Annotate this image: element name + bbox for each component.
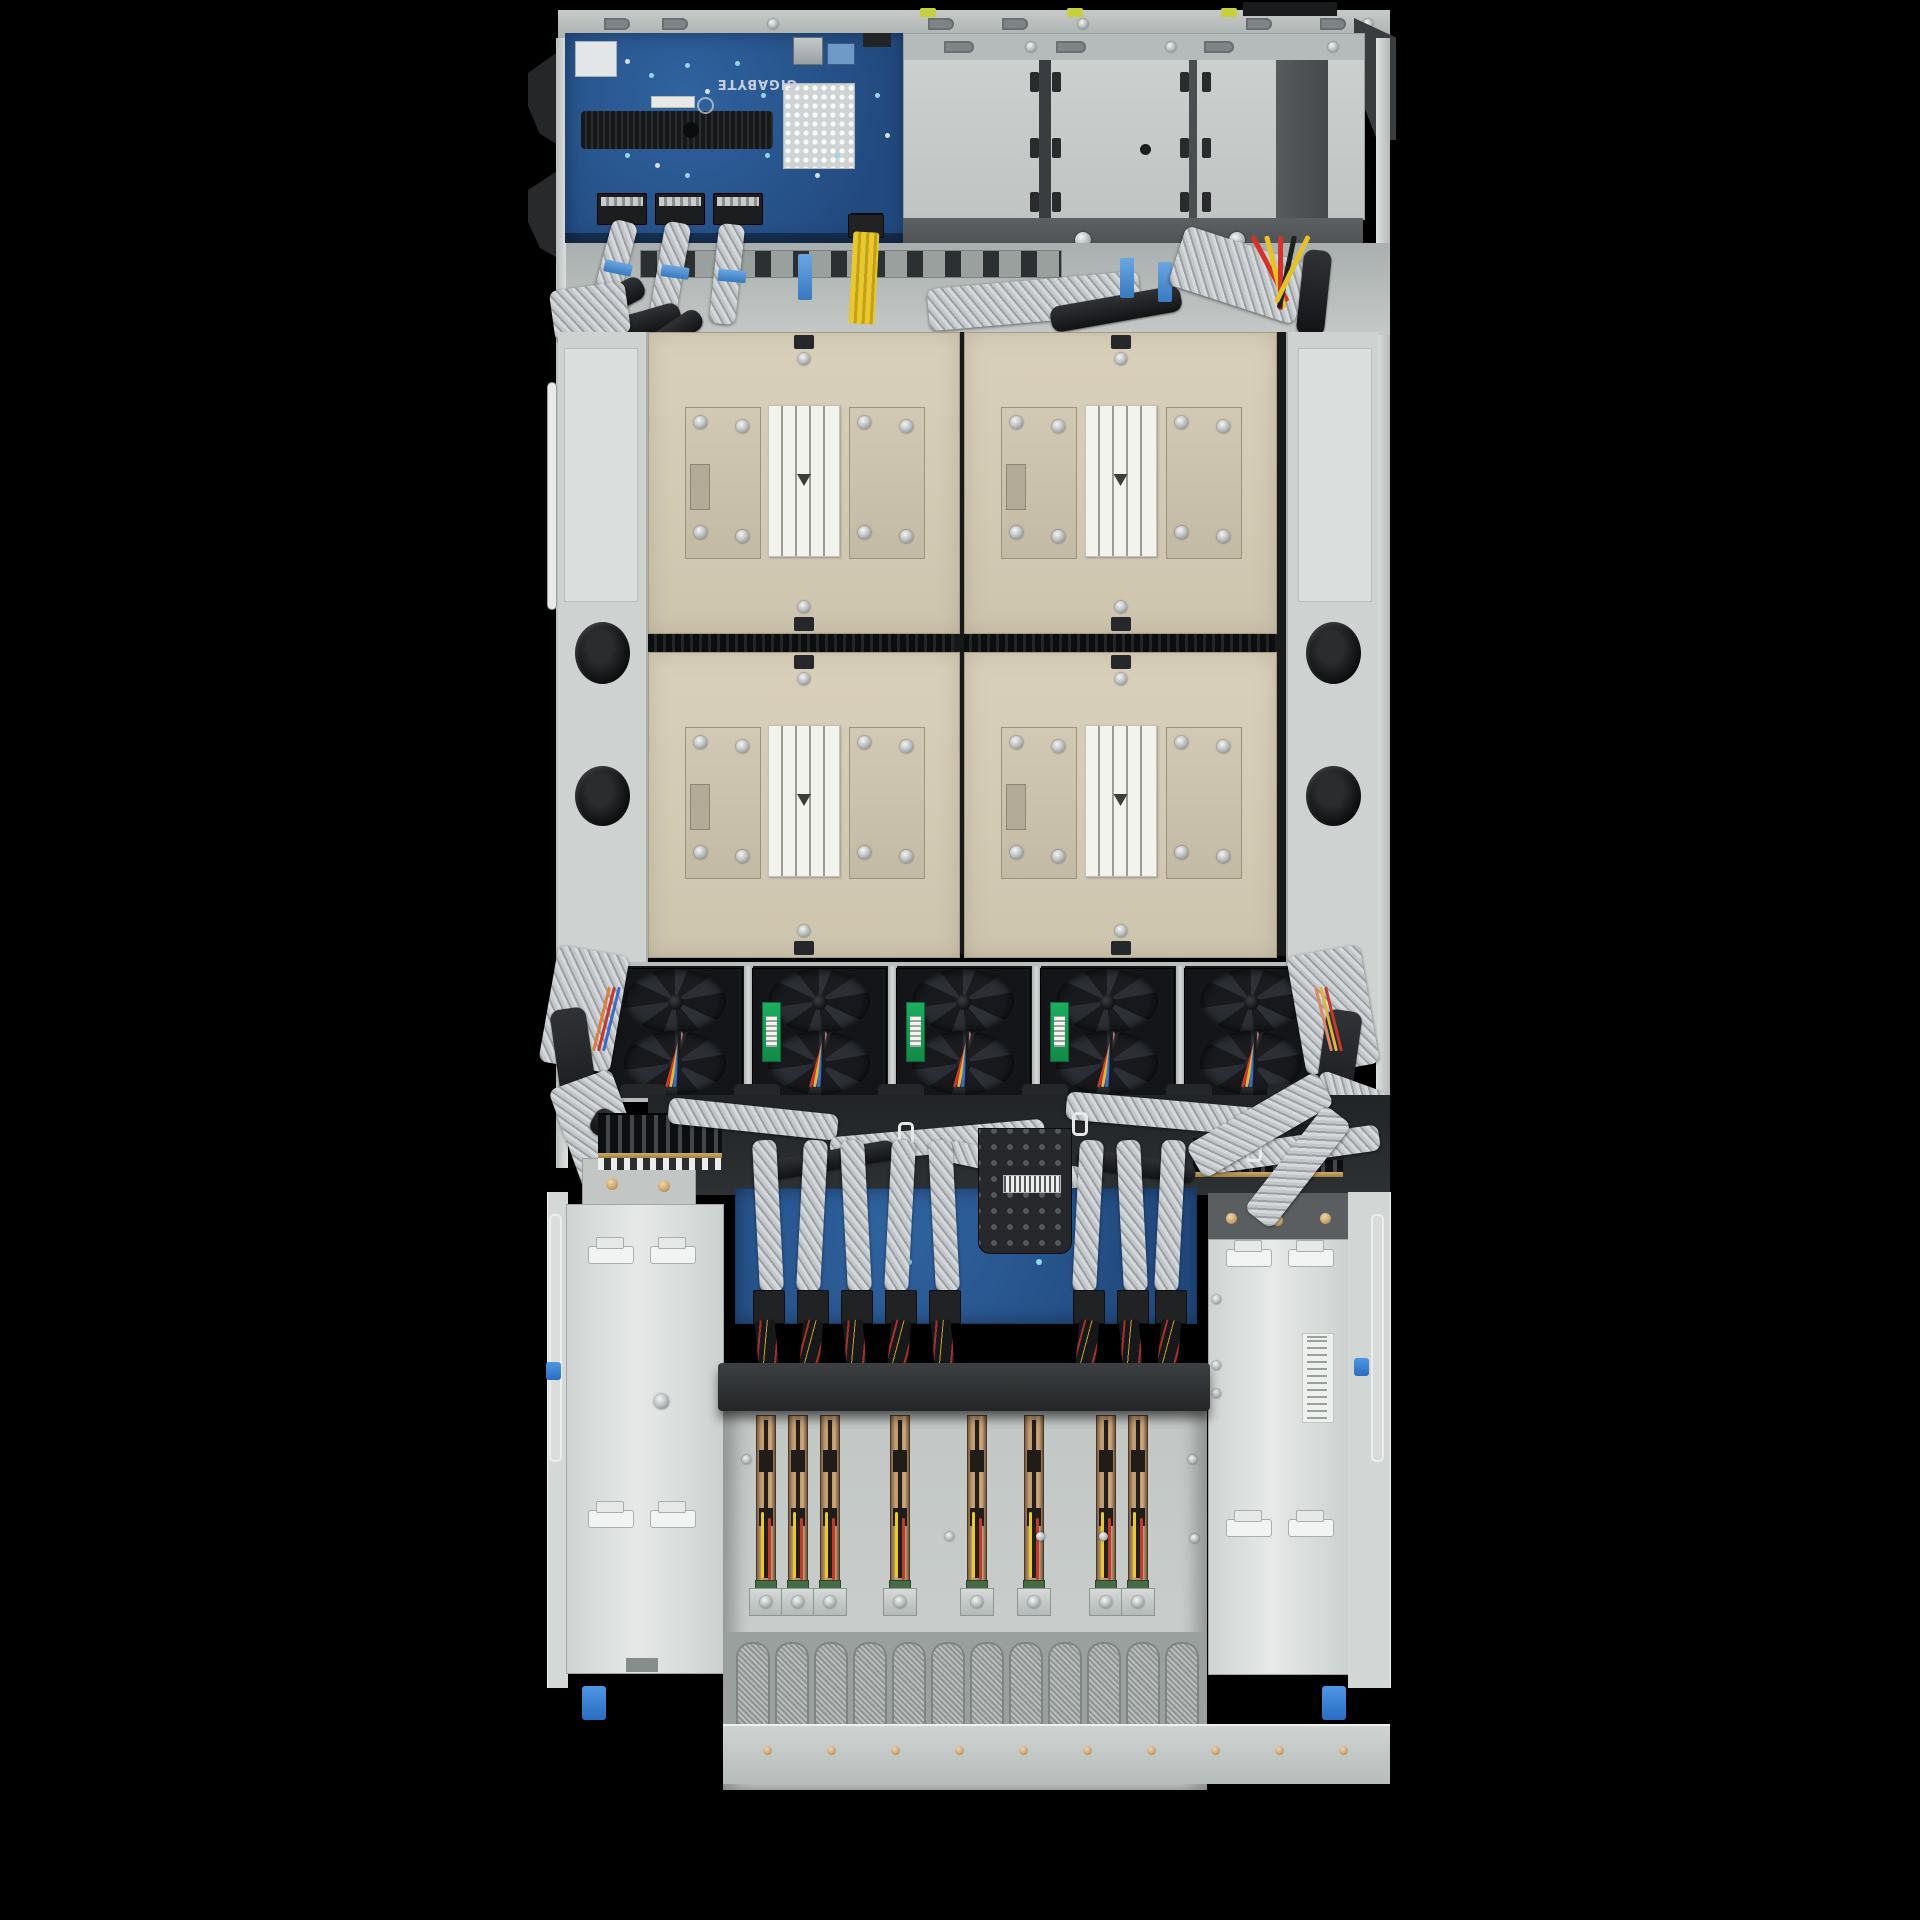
comb-gold-edge-right (1193, 1172, 1343, 1177)
rail-notch (1246, 18, 1272, 30)
fan-hub (956, 995, 971, 1010)
fan-deck (600, 962, 1326, 1102)
rail-inner-panel (1298, 348, 1372, 602)
heatsink-screw-bottom (1115, 601, 1127, 613)
comb-teeth-left (598, 1158, 722, 1170)
clamp-screw (1175, 416, 1188, 429)
heatsink-clamp-left (1001, 727, 1077, 879)
rail-service-hole (1306, 622, 1361, 684)
fan-barcode-label (906, 1002, 925, 1062)
heatsink-notch-top (1111, 335, 1131, 349)
clamp-screw (858, 736, 871, 749)
clamp-screw (1175, 736, 1188, 749)
clamp-screw (694, 736, 707, 749)
board-capacitor (875, 93, 880, 98)
label-arrow-icon (1114, 474, 1128, 486)
heatsink-clamp-left (685, 407, 761, 559)
lip-screw (891, 1746, 900, 1755)
heatsink-spec-label (1085, 405, 1157, 557)
sas-connector-3 (713, 193, 763, 225)
psu-edge-screw (1212, 1361, 1221, 1370)
psu-rail-clip-tab (596, 1237, 624, 1249)
board-capacitor (761, 93, 766, 98)
clamp-screw (1010, 736, 1023, 749)
drive-clip (1180, 138, 1189, 158)
right-service-rail (1286, 332, 1378, 1046)
rail-screw (768, 19, 778, 29)
psu-left-wall-clip (546, 1362, 561, 1380)
cage-screw (1166, 42, 1176, 52)
io-port-silver (793, 37, 823, 65)
heatsink-notch-bottom (794, 941, 814, 955)
clamp-screw (694, 416, 707, 429)
clamp-screw (1217, 530, 1230, 543)
chassis-top-right-cap (1243, 2, 1337, 16)
sas-connector-teeth (601, 197, 643, 206)
cage-notch (1056, 41, 1086, 53)
board-capacitor (885, 133, 890, 138)
clamp-screw (900, 850, 913, 863)
bottom-lip (723, 1724, 1390, 1784)
board-capacitor (655, 163, 660, 168)
heatsink-clamp-right (1166, 407, 1242, 559)
heatsink-col-gap (954, 332, 964, 954)
label-arrow-icon (797, 794, 811, 806)
cage-divider-bar-2 (1189, 60, 1197, 219)
board-capacitor (1086, 1229, 1092, 1235)
sas-connector-teeth (717, 197, 759, 206)
rail-notch (604, 18, 630, 30)
cage-notch (944, 41, 974, 53)
rail-notch (1320, 18, 1346, 30)
green-latch-tab (920, 8, 936, 17)
heatsink-clamp-right (1166, 727, 1242, 879)
label-arrow-icon (1114, 794, 1128, 806)
green-latch-tab (1221, 8, 1237, 17)
left-service-rail (558, 332, 648, 1046)
power-comb-connector-left (598, 1113, 722, 1155)
psu-body (1208, 1239, 1350, 1675)
lip-screw (1211, 1746, 1220, 1755)
vent-backing (726, 1632, 1204, 1732)
heatsink-spec-label (1085, 725, 1157, 877)
fan-hub (1100, 995, 1115, 1010)
heatsink-screw-top (1115, 353, 1127, 365)
fan-hub (668, 995, 683, 1010)
board-capacitor (946, 1233, 952, 1239)
shelf-slot-strip (640, 250, 1062, 278)
psu-bracket-screw (606, 1178, 618, 1190)
psu-center-screw (654, 1394, 669, 1409)
psu-right-handle (1371, 1214, 1384, 1462)
psu-right-wall-clip (1354, 1358, 1369, 1376)
drive-clip (1180, 72, 1189, 92)
drive-clip (1052, 138, 1061, 158)
ribbed-heatsink (581, 111, 773, 149)
cpu-heatsink-4 (964, 652, 1277, 958)
front-io-board: GIGABYTE (565, 33, 905, 243)
gigabyte-logo: GIGABYTE (715, 73, 799, 91)
green-latch-tab (1067, 8, 1083, 17)
cage-guide-hole (1140, 144, 1151, 155)
fan-barcode (766, 1016, 777, 1047)
drive-clip (1180, 192, 1189, 212)
cage-screw (1328, 42, 1338, 52)
lip-screw (1019, 1746, 1028, 1755)
heatsink-screw-bottom (798, 925, 810, 937)
clamp-screw (1175, 526, 1188, 539)
serial-sticker (651, 96, 695, 108)
rail-notch (662, 18, 688, 30)
clamp-screw (858, 846, 871, 859)
clamp-screw (1052, 740, 1065, 753)
heatsink-clamp-left (1001, 407, 1077, 559)
lip-screw (827, 1746, 836, 1755)
fan-barcode (1054, 1016, 1065, 1047)
heatsink-clamp-right (849, 407, 925, 559)
drive-clip (1030, 192, 1039, 212)
fan-module-5 (1184, 968, 1319, 1098)
board-capacitor (906, 1259, 912, 1265)
board-capacitor (856, 1223, 862, 1229)
clamp-screw (900, 530, 913, 543)
power-connector (851, 213, 883, 235)
heatsink-screw-top (798, 353, 810, 365)
clamp-mini-label (690, 784, 710, 830)
lip-screw (1339, 1746, 1348, 1755)
heatsink-clamp-left (685, 727, 761, 879)
clamp-screw (694, 526, 707, 539)
psu-rail-clip-tab (1234, 1510, 1262, 1522)
heatsink-notch-top (1111, 655, 1131, 669)
fan-barcode-label (762, 1002, 781, 1062)
heatsink-right-gap (1275, 332, 1286, 956)
cage-divider-bar-1 (1039, 60, 1051, 219)
cage-top-bracket (904, 34, 1364, 60)
psu-left-handle (549, 1214, 562, 1462)
clamp-screw (736, 850, 749, 863)
psu-rail-clip-tab (658, 1501, 686, 1513)
psu-rail-clip-tab (1296, 1510, 1324, 1522)
psu-strip-screw (1272, 1215, 1283, 1226)
psu-edge-screw (1212, 1295, 1221, 1304)
heatsink-screw-top (798, 673, 810, 685)
heatsink-spec-label (768, 725, 840, 877)
drive-clip (1030, 138, 1039, 158)
clamp-screw (736, 530, 749, 543)
heatsink-screw-bottom (1115, 925, 1127, 937)
clamp-screw (1217, 740, 1230, 753)
lip-screw (1083, 1746, 1092, 1755)
support-crossbar (718, 1363, 1210, 1411)
board-capacitor (766, 1229, 772, 1235)
server-photo-stage: GIGABYTE (0, 0, 1920, 1920)
psu-bay-left (566, 1158, 722, 1672)
drive-clip (1202, 192, 1211, 212)
rail-screw (1078, 19, 1088, 29)
bracket-barcode-label (1003, 1175, 1061, 1193)
io-port-black (863, 33, 891, 47)
cage-divider-bar-3 (1276, 60, 1328, 219)
drive-clip (1202, 72, 1211, 92)
rail-inner-panel (564, 348, 638, 602)
psu-strip-screw (1226, 1213, 1237, 1224)
drive-clip (1052, 192, 1061, 212)
ul-mark-icon (697, 97, 714, 114)
board-capacitor (1036, 1259, 1042, 1265)
sas-connector-1 (597, 193, 647, 225)
fan-hub (812, 995, 827, 1010)
clamp-screw (1175, 846, 1188, 859)
psu-bracket-screw (658, 1180, 670, 1192)
midplane-board (735, 1188, 1197, 1324)
comb-block-right (1290, 1124, 1344, 1160)
heatsink-notch-top (794, 335, 814, 349)
rail-service-hole (575, 622, 630, 684)
psu-rail-clip-tab (658, 1237, 686, 1249)
clamp-mini-label (690, 464, 710, 510)
psu-bottom-notch (626, 1658, 658, 1672)
board-capacitor (806, 1255, 812, 1261)
fan-hub (1244, 995, 1259, 1010)
rail-notch (1002, 18, 1028, 30)
board-capacitor (705, 89, 710, 94)
lip-screw (763, 1746, 772, 1755)
rail-service-hole (575, 766, 630, 826)
clamp-screw (858, 526, 871, 539)
lip-screw (1275, 1746, 1284, 1755)
heatsink-notch-bottom (1111, 941, 1131, 955)
fan-barcode (910, 1016, 921, 1047)
heatsink-notch-top (794, 655, 814, 669)
sas-connector-teeth (659, 197, 701, 206)
psu-spec-label (1302, 1333, 1334, 1423)
heatsink-clamp-right (849, 727, 925, 879)
rail-notch (928, 18, 954, 30)
board-capacitor (1131, 1253, 1137, 1259)
psu-rail-clip-tab (1234, 1240, 1262, 1252)
left-rail-pin (547, 382, 557, 610)
cage-notch (1204, 41, 1234, 53)
board-edge-shadow (565, 233, 905, 243)
drive-clip (1202, 138, 1211, 158)
psu-strip-screw (1320, 1213, 1331, 1224)
board-capacitor (765, 153, 770, 158)
board-capacitor (835, 153, 840, 158)
board-capacitor (685, 63, 690, 68)
cage-screw (1026, 42, 1036, 52)
io-port-blue (827, 43, 855, 65)
cpu-heatsink-3 (648, 652, 960, 958)
board-capacitor (1166, 1223, 1172, 1229)
clamp-screw (694, 846, 707, 859)
clamp-screw (736, 420, 749, 433)
fan-module-2 (752, 968, 887, 1098)
clamp-screw (900, 740, 913, 753)
heatsink-notch-bottom (794, 617, 814, 631)
board-capacitor (815, 173, 820, 178)
clamp-mini-label (1006, 464, 1026, 510)
perforated-bracket (978, 1128, 1072, 1254)
clamp-mini-label (1006, 784, 1026, 830)
clamp-screw (1010, 846, 1023, 859)
clamp-screw (1052, 420, 1065, 433)
psu-bay-right (1208, 1193, 1348, 1673)
board-capacitor (735, 61, 740, 66)
psu-left-release-tab (582, 1686, 606, 1720)
clamp-screw (1217, 850, 1230, 863)
label-arrow-icon (797, 474, 811, 486)
psu-right-outer-wall (1348, 1192, 1391, 1688)
drive-clip (1052, 72, 1061, 92)
board-capacitor (625, 59, 630, 64)
psu-rail-clip-tab (596, 1501, 624, 1513)
rail-service-hole (1306, 766, 1361, 826)
fan-module-3 (896, 968, 1031, 1098)
clamp-screw (1010, 526, 1023, 539)
ribbed-heatsink-hole (683, 122, 699, 138)
board-capacitor (625, 153, 630, 158)
cpu-heatsink-2 (964, 332, 1277, 634)
psu-right-release-tab (1322, 1686, 1346, 1720)
lip-screw (1147, 1746, 1156, 1755)
clamp-screw (736, 740, 749, 753)
board-capacitor (685, 173, 690, 178)
heatsink-spec-label (768, 405, 840, 557)
psu-edge-screw (1212, 1389, 1221, 1398)
right-side-wall (1376, 38, 1390, 1168)
clamp-screw (900, 420, 913, 433)
psu-rail-clip-tab (1296, 1240, 1324, 1252)
heatsink-notch-bottom (1111, 617, 1131, 631)
fan-module-1 (608, 968, 743, 1098)
heatsink-screw-top (1115, 673, 1127, 685)
cpu-heatsink-1 (648, 332, 960, 634)
clamp-screw (1010, 416, 1023, 429)
clamp-screw (858, 416, 871, 429)
pin-grid-heatsink (783, 83, 855, 169)
clamp-screw (1052, 530, 1065, 543)
clamp-screw (1217, 420, 1230, 433)
psu-body (566, 1204, 724, 1674)
io-white-module (575, 41, 617, 77)
sas-connector-2 (655, 193, 705, 225)
fan-barcode-label (1050, 1002, 1069, 1062)
board-capacitor (649, 73, 654, 78)
clamp-screw (1052, 850, 1065, 863)
lip-screw (955, 1746, 964, 1755)
drive-clip (1030, 72, 1039, 92)
drive-cage (903, 33, 1365, 220)
heatsink-screw-bottom (798, 601, 810, 613)
fan-module-4 (1040, 968, 1175, 1098)
